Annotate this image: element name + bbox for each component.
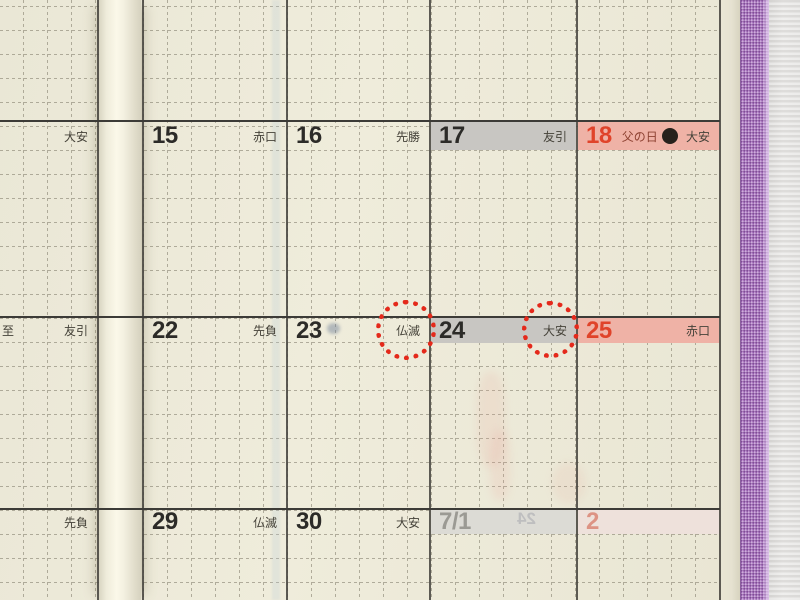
date-number: 25	[578, 319, 612, 343]
date-number: 16	[288, 124, 322, 148]
rokuyo-label: 大安	[686, 128, 719, 145]
week-divider-line	[0, 316, 720, 318]
rokuyo-label: 先勝	[396, 128, 429, 145]
cover-edge	[740, 0, 769, 600]
week-divider-line	[0, 508, 720, 510]
rokuyo-label: 大安	[64, 128, 97, 145]
rokuyo-label: 先負	[253, 322, 286, 339]
calendar-page: 大安 15 赤口 16 先勝 17 友引 18 父の日 大安 至 友引	[0, 0, 740, 600]
date-number: 17	[431, 124, 465, 148]
date-cell-july2-next-month: 2	[578, 510, 719, 534]
new-moon-icon	[662, 128, 678, 144]
rokuyo-label: 先負	[64, 514, 97, 531]
planner-photo: 大安 15 赤口 16 先勝 17 友引 18 父の日 大安 至 友引	[0, 0, 800, 600]
date-number: 22	[144, 319, 178, 343]
fathers-day-label: 父の日	[622, 128, 658, 145]
column-line	[719, 0, 721, 600]
show-through-mark	[552, 462, 586, 504]
column-line	[97, 0, 99, 600]
show-through-ghost-text: 24	[517, 509, 536, 529]
background-surface	[769, 0, 800, 600]
date-cell-prev-column-row2: 至 友引	[0, 318, 97, 343]
rokuyo-label: 仏滅	[253, 514, 286, 531]
date-cell-18-sunday: 18 父の日 大安	[578, 122, 719, 150]
date-cell-30: 30 大安	[288, 510, 429, 534]
red-dotted-circle-icon	[376, 300, 436, 360]
date-cell-22: 22 先負	[144, 318, 286, 343]
date-number: 15	[144, 124, 178, 148]
date-cell-july1-next-month: 7/1	[431, 510, 576, 534]
red-dotted-circle-icon	[522, 301, 579, 358]
date-cell-29: 29 仏滅	[144, 510, 286, 534]
rokuyo-label: 赤口	[686, 322, 719, 339]
date-cell-25-sunday: 25 赤口	[578, 318, 719, 343]
cover-edge-highlight	[762, 0, 769, 600]
page-gutter	[99, 0, 141, 600]
date-number: 23	[288, 319, 322, 343]
date-number: 30	[288, 510, 322, 534]
column-line	[142, 0, 144, 600]
week-divider-line	[0, 120, 720, 122]
date-cell-prev-column-row1: 大安	[0, 122, 97, 150]
date-cell-17-saturday: 17 友引	[431, 122, 576, 150]
rokuyo-label: 友引	[543, 128, 576, 145]
column-line	[286, 0, 288, 600]
rokuyo-label: 赤口	[253, 128, 286, 145]
ink-smudge	[327, 323, 340, 334]
page-right-margin	[719, 0, 740, 600]
date-number: 24	[431, 319, 465, 343]
date-cell-15: 15 赤口	[144, 122, 286, 150]
date-number: 18	[578, 124, 612, 148]
date-number: 29	[144, 510, 178, 534]
date-number: 2	[578, 510, 599, 534]
rokuyo-label: 大安	[396, 514, 429, 531]
date-cell-prev-column-row3: 先負	[0, 510, 97, 534]
date-number: 7/1	[431, 510, 471, 534]
rokuyo-label: 友引	[64, 322, 97, 339]
date-cell-16: 16 先勝	[288, 122, 429, 150]
solstice-label-tail: 至	[0, 322, 14, 339]
column-line	[429, 0, 431, 600]
show-through-mark	[490, 430, 510, 500]
column-line	[576, 0, 578, 600]
